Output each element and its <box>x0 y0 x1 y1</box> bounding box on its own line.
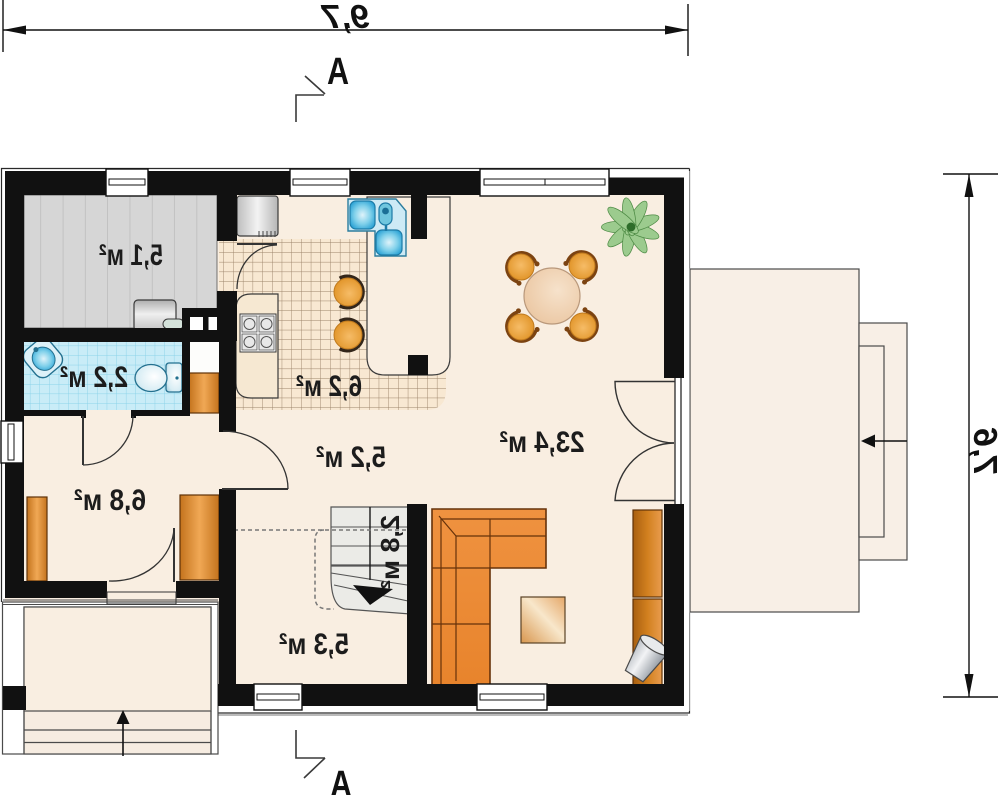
svg-text:2,2 м²: 2,2 м² <box>60 361 128 394</box>
svg-text:A: A <box>327 51 349 93</box>
svg-text:5,2 м²: 5,2 м² <box>316 441 386 474</box>
svg-text:A: A <box>330 764 352 795</box>
svg-text:5,1 м²: 5,1 м² <box>99 239 163 272</box>
svg-text:6,8 м²: 6,8 м² <box>74 484 146 517</box>
svg-text:23,4 м²: 23,4 м² <box>499 426 584 459</box>
svg-text:6,2 м²: 6,2 м² <box>296 370 362 403</box>
svg-text:9,7: 9,7 <box>320 0 370 35</box>
svg-text:7,6: 7,6 <box>967 427 1000 476</box>
svg-text:5,3 м²: 5,3 м² <box>279 628 349 661</box>
svg-text:2,8 м²: 2,8 м² <box>375 515 405 589</box>
